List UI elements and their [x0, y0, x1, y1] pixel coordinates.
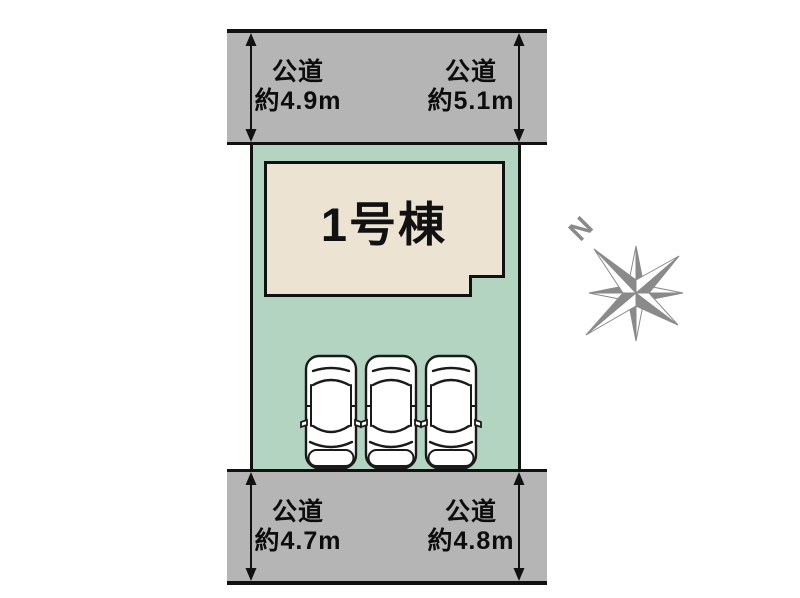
parking-cars: [250, 145, 521, 469]
car-icon: [361, 356, 421, 469]
car-icon: [301, 356, 361, 469]
car-icon: [421, 356, 481, 469]
site-plan-diagram: 公道 約4.9m 公道 約5.1m 公道 約4.7m 公道 約4.8m 1号棟: [0, 0, 800, 598]
